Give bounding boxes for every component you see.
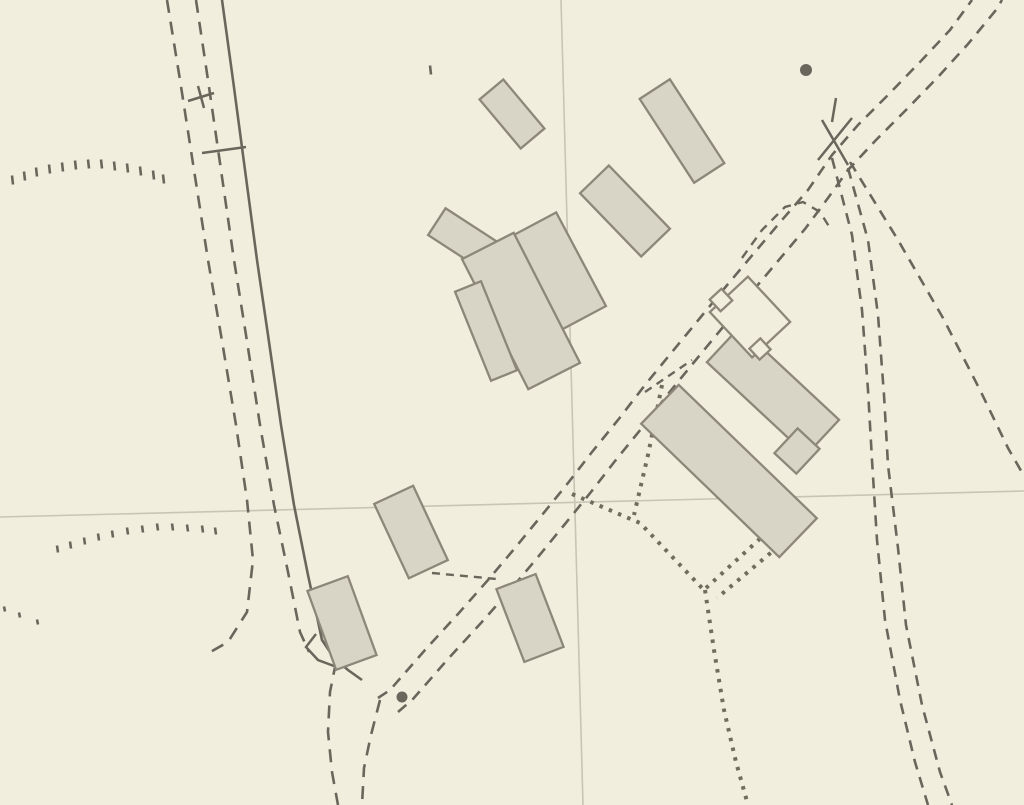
map-svg xyxy=(0,0,1024,805)
rough-pasture-row-topleft xyxy=(62,163,63,172)
rough-pasture-row-topleft xyxy=(163,175,164,184)
rough-pasture-row-midleft xyxy=(98,534,99,541)
rough-pasture-row-topleft xyxy=(127,164,128,173)
rough-pasture-row-midleft xyxy=(70,542,71,549)
rough-pasture-row-lowleft xyxy=(37,620,38,625)
rough-pasture-row-midleft xyxy=(157,524,158,531)
milestone-dot xyxy=(800,64,812,76)
rough-pasture-row-topleft xyxy=(88,160,89,169)
rough-pasture-row-topleft xyxy=(75,161,76,170)
rough-pasture-row-lowleft xyxy=(4,607,5,612)
os-map-canvas xyxy=(0,0,1024,805)
rough-pasture-row-midleft xyxy=(215,528,216,535)
rough-pasture-row-topleft xyxy=(12,176,13,185)
rough-pasture-row-topleft xyxy=(101,160,102,169)
rough-pasture-row-midleft xyxy=(57,546,58,553)
contour-tick-topcenter xyxy=(430,66,431,75)
rough-pasture-row-midleft xyxy=(112,531,113,538)
rough-pasture-row-midleft xyxy=(84,538,85,545)
rough-pasture-row-topleft xyxy=(114,162,115,171)
rough-pasture-row-topleft xyxy=(153,171,154,180)
flagstaff-dot xyxy=(397,692,408,703)
rough-pasture-row-midleft xyxy=(187,525,188,532)
rough-pasture-row-midleft xyxy=(127,528,128,535)
rough-pasture-row-midleft xyxy=(142,526,143,533)
rough-pasture-row-midleft xyxy=(202,526,203,533)
rough-pasture-row-topleft xyxy=(36,168,37,177)
rough-pasture-row-topleft xyxy=(140,167,141,176)
rough-pasture-row-midleft xyxy=(172,524,173,531)
rough-pasture-row-lowleft xyxy=(19,613,20,618)
rough-pasture-row-topleft xyxy=(24,172,25,181)
rough-pasture-row-topleft xyxy=(49,165,50,174)
